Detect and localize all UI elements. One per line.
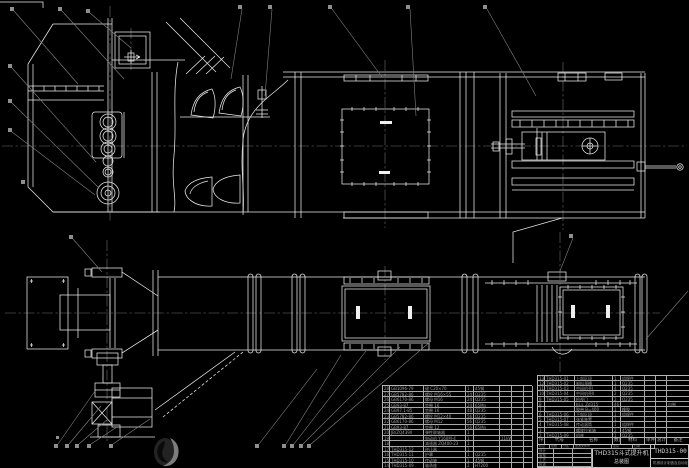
- title-block: 标记处数分区更改文件号签名日期 设计审核工艺批准 THD315斗式提升机 总装图…: [537, 444, 689, 468]
- table-cell: [573, 463, 592, 468]
- table-cell: 14: [383, 463, 390, 468]
- cad-drawing-sheet: 28GB1096-79键 C20×70145钢27GB5782-86螺栓 M16…: [0, 0, 689, 468]
- table-cell: [524, 463, 533, 468]
- table-cell: 轴承座: [424, 463, 466, 468]
- casing-middle-side: [53, 62, 645, 218]
- balloon-markers: [8, 5, 573, 448]
- drawing-number: THD315-00: [650, 445, 689, 458]
- boot-section-side: [491, 73, 683, 263]
- bom-table-standard-parts: 28GB1096-79键 C20×70145钢27GB5782-86螺栓 M16…: [382, 385, 532, 468]
- inspection-door-plan: [342, 271, 430, 356]
- drawing-type: 总装图: [593, 458, 650, 466]
- drive-unit-plan: [90, 352, 243, 437]
- frame-corner: [0, 2, 43, 8]
- takeup-screw: [637, 162, 683, 171]
- bom-table-header: 序号代号名称数量材料单件总计备注: [537, 437, 689, 444]
- side-view: [28, 18, 683, 263]
- product-name: THD315斗式提升机: [593, 449, 650, 458]
- table-cell: [500, 463, 512, 468]
- table-cell: [512, 463, 524, 468]
- head-section: [28, 18, 230, 212]
- boot-door-plan: [558, 285, 625, 340]
- table-cell: THD315-09: [390, 463, 424, 468]
- table-cell: [554, 463, 573, 468]
- inspection-door-side: [340, 75, 431, 218]
- signature-grid: 设计审核工艺批准: [538, 449, 592, 467]
- table-cell: 批准: [538, 463, 554, 468]
- takeup-pulley: [491, 128, 605, 160]
- table-cell: HT200: [474, 463, 500, 468]
- organization: 机械设计制造及自动化: [650, 458, 689, 467]
- feed-spout: [115, 32, 150, 68]
- buckets: [185, 87, 243, 206]
- table-cell: 2: [466, 463, 474, 468]
- bom-table-main-parts: 13THD315-01上部区段1组焊件12THD315-02卸料溜槽1Q2351…: [537, 375, 689, 437]
- drawing-title-cell: THD315斗式提升机 总装图: [592, 449, 650, 467]
- bolt-detail: [256, 86, 268, 118]
- watermark-logo: [154, 438, 179, 466]
